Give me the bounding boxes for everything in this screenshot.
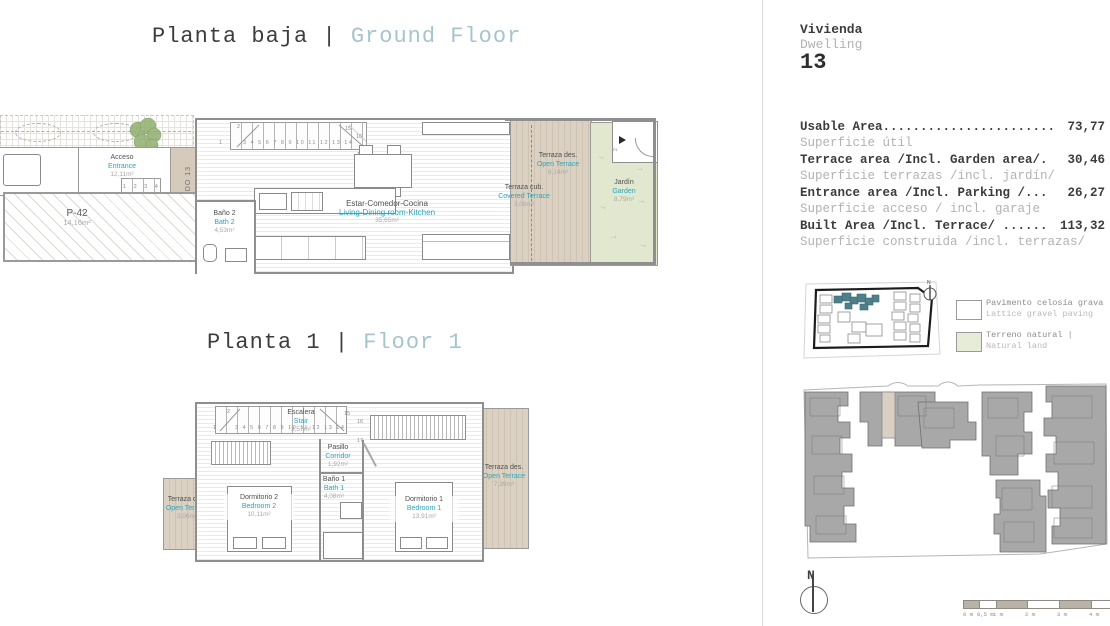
scale-label: 1 m: [993, 611, 1003, 618]
title-sep: |: [322, 24, 336, 49]
scale-label: 3 m: [1057, 611, 1067, 618]
pergola-area: [0, 115, 194, 150]
wardrobe-bedroom1: [370, 415, 466, 440]
door-arrow-icon: [619, 136, 626, 144]
scale-seg: [980, 600, 996, 609]
wardrobe-bedroom2: [211, 441, 271, 465]
wall: [319, 439, 321, 560]
pillow: [233, 537, 257, 549]
title-es: Planta baja: [152, 24, 308, 49]
dining-table: [354, 154, 412, 188]
area-row-sub: Superficie construida /incl. terrazas/: [800, 235, 1110, 249]
ground-floor-plan: Acceso Entrance 12,11m² 1 2 3 4 ADO 13 P…: [0, 112, 660, 287]
garden-arrow: →: [596, 150, 607, 162]
stair-num: 2: [237, 124, 240, 130]
stair-num: 15: [344, 411, 350, 417]
svg-text:N: N: [927, 280, 931, 286]
gravel-swatch: [956, 300, 982, 320]
scale-seg: [997, 600, 1029, 609]
room-bath2: Baño 2 Bath 2 4,53m²: [197, 200, 256, 274]
area-row-sub: Superficie acceso / incl. garaje: [800, 202, 1110, 216]
stair-num: 16: [356, 134, 362, 140]
north-compass-icon: N: [798, 568, 832, 618]
garden-arrow: →: [634, 162, 645, 173]
scale-segments: [963, 600, 1110, 609]
area-value: 113,32: [1060, 219, 1105, 233]
parking-label: P-42 14,16m²: [47, 210, 107, 227]
sink: [225, 248, 247, 262]
mini-compass-icon: N: [924, 280, 936, 300]
floor1-title: Planta 1 | Floor 1: [207, 330, 463, 355]
scale-seg: [1060, 600, 1092, 609]
stair-num: 1: [219, 140, 222, 146]
wall: [505, 118, 656, 121]
stair-num-run: 3 4 5 6 7 8 9 10 11 12 13 14: [235, 425, 345, 431]
compass-needle: [812, 574, 814, 612]
scale-label: 0 m: [963, 611, 973, 618]
highlighted-dwelling-13: [882, 392, 895, 438]
legend-gravel-text: Pavimento celosía grava Lattice gravel p…: [986, 298, 1110, 320]
garden-step-num: 2: [613, 148, 619, 151]
house-ground: 2 1 3 4 5 6 7 8 9 10 11 12 13 14 15 16 1…: [195, 118, 514, 274]
garden-arrow: →: [637, 195, 646, 205]
plan-sheet: Planta baja | Ground Floor Planta 1 | Fl…: [0, 0, 1110, 626]
house-floor1: 2 1 3 4 5 6 7 8 9 10 11 12 13 14 15 16 1…: [195, 402, 484, 562]
site-overview-map: N: [798, 278, 943, 362]
bed-bedroom1: [395, 482, 453, 552]
area-value: 26,27: [1067, 186, 1105, 200]
title-en: Ground Floor: [351, 24, 521, 49]
dwelling-es: Vivienda: [800, 22, 862, 37]
pillow: [426, 537, 448, 549]
natural-swatch: [956, 332, 982, 352]
kitchen-lower-counter: [254, 236, 366, 260]
stair-num: 2: [227, 409, 230, 415]
scale-seg: [1092, 600, 1110, 609]
dwelling-number: 13: [800, 52, 862, 74]
door-arc: [635, 138, 654, 157]
garden-arrow: →: [638, 238, 649, 250]
top-cabinet: [422, 122, 510, 135]
f1-terrace-right: [480, 408, 529, 549]
legend-item-gravel: Pavimento celosía grava Lattice gravel p…: [956, 298, 1110, 326]
room-label-entrance: Acceso Entrance 12,11m²: [87, 154, 157, 180]
wall: [510, 262, 656, 265]
stair-num: 16: [357, 419, 363, 425]
door-leaf: [363, 443, 377, 467]
utility-room: 2: [612, 121, 658, 163]
panel-divider: [762, 0, 763, 626]
chair: [387, 145, 401, 155]
area-row: Entrance area /Incl. Parking /...26,27: [800, 186, 1105, 200]
scale-seg: [963, 600, 980, 609]
title-en: Floor 1: [363, 330, 462, 355]
garden-arrow: →: [608, 230, 619, 242]
sink: [340, 502, 362, 519]
scale-label: 2 m: [1025, 611, 1035, 618]
garden-arrow: →: [598, 200, 610, 212]
pergola-symbol: [15, 123, 61, 142]
area-row: Built Area /Incl. Terrace/ ......113,32: [800, 219, 1105, 233]
parking-space: P-42 14,16m²: [3, 192, 214, 262]
stair-num: 1: [213, 425, 216, 431]
legend-item-natural: Terreno natural | Natural land: [956, 330, 1110, 358]
area-value: 73,77: [1067, 120, 1105, 134]
area-row-sub: Superficie útil: [800, 136, 1110, 150]
toilet: [203, 244, 217, 262]
scale-seg: [1028, 600, 1060, 609]
bed-bedroom2: [227, 486, 292, 552]
chair: [359, 145, 373, 155]
wall: [653, 118, 656, 264]
scale-label: 4 m: [1089, 611, 1099, 618]
legend: Pavimento celosía grava Lattice gravel p…: [956, 298, 1110, 358]
sofa-back-line: [423, 241, 509, 242]
area-row-sub: Superficie terrazas /incl. jardín/: [800, 169, 1110, 183]
kitchen-hob: [291, 192, 323, 211]
stair-num-run: 3 4 5 6 7 8 9 10 11 12 13 14: [243, 140, 353, 146]
left-room: [0, 147, 80, 196]
sofa: [422, 234, 510, 260]
dwelling-header: Vivienda Dwelling 13: [800, 22, 862, 74]
ground-floor-title: Planta baja | Ground Floor: [152, 24, 521, 49]
floor1-plan: Terraza des. Open Terrace 3,06m² Terraza…: [160, 398, 535, 563]
room-label-bath1: Baño 1 Bath 1 4,08m²: [309, 476, 359, 502]
pillow: [262, 537, 286, 549]
scale-label: 0,5 m: [977, 611, 994, 618]
room-label-bath2: Baño 2 Bath 2 4,53m²: [197, 210, 252, 236]
entry-step-numbers: 1 2 3 4: [123, 184, 161, 190]
scale-bar: 0 m 0,5 m 1 m 2 m 3 m 4 m: [963, 600, 1110, 620]
wall: [319, 472, 364, 474]
kitchen-sink: [259, 193, 287, 210]
roof-edge-dashed: [531, 125, 532, 261]
terrace-ground: [510, 120, 592, 266]
legend-natural-text: Terreno natural | Natural land: [986, 330, 1110, 352]
compass-circle: [800, 586, 828, 614]
title-sep: |: [335, 330, 349, 355]
stair-num: 15: [345, 126, 351, 132]
kitchen-counter: [254, 188, 396, 214]
area-row: Terrace area /Incl. Garden area/.30,46: [800, 153, 1105, 167]
site-plan: [800, 376, 1110, 566]
room-entrance: Acceso Entrance 12,11m² 1 2 3 4: [78, 147, 174, 196]
shower: [323, 532, 363, 559]
pergola-line: [1, 131, 191, 132]
area-row: Usable Area.......................73,77: [800, 120, 1105, 134]
area-value: 30,46: [1067, 153, 1105, 167]
pillow: [400, 537, 422, 549]
title-es: Planta 1: [207, 330, 321, 355]
fixture: [3, 154, 41, 186]
